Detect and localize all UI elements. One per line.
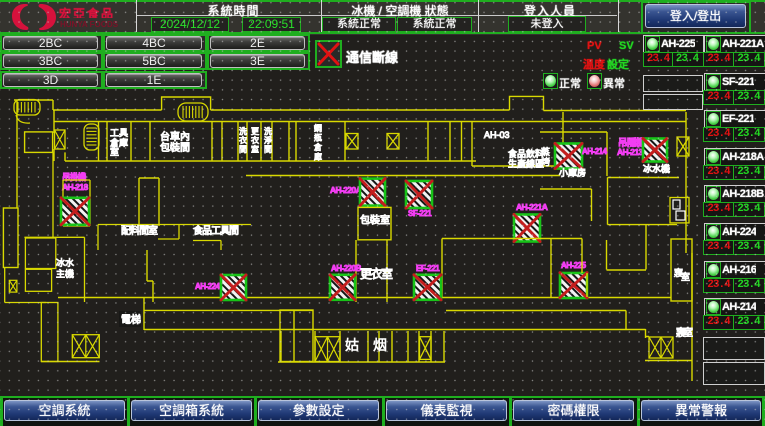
svg-text:冰水: 冰水 bbox=[56, 257, 74, 268]
svg-text:洗: 洗 bbox=[239, 126, 247, 136]
svg-text:姑: 姑 bbox=[345, 337, 359, 353]
svg-text:工具: 工具 bbox=[110, 128, 128, 138]
svg-text:更: 更 bbox=[251, 127, 259, 136]
svg-text:室: 室 bbox=[681, 271, 690, 282]
svg-text:間: 間 bbox=[239, 145, 247, 154]
svg-text:衣: 衣 bbox=[239, 135, 247, 145]
svg-text:倉: 倉 bbox=[314, 142, 322, 152]
svg-text:庫: 庫 bbox=[314, 152, 322, 162]
svg-text:更衣室: 更衣室 bbox=[360, 266, 393, 281]
svg-text:AH-221A: AH-221A bbox=[516, 202, 548, 212]
svg-text:AH-03: AH-03 bbox=[484, 130, 510, 140]
svg-text:電梯: 電梯 bbox=[121, 313, 141, 326]
svg-text:包裝室: 包裝室 bbox=[360, 214, 390, 227]
svg-text:衣: 衣 bbox=[251, 135, 259, 145]
svg-text:淨: 淨 bbox=[264, 135, 272, 145]
svg-text:主機: 主機 bbox=[56, 268, 74, 279]
svg-text:洗: 洗 bbox=[264, 126, 272, 136]
svg-text:食品飲料: 食品飲料 bbox=[508, 148, 544, 159]
svg-text:AH-218: AH-218 bbox=[62, 182, 89, 192]
svg-text:蒸: 蒸 bbox=[541, 146, 550, 157]
svg-text:室: 室 bbox=[110, 146, 119, 157]
svg-text:AH-213: AH-213 bbox=[617, 147, 644, 157]
svg-text:台車內: 台車內 bbox=[160, 130, 190, 143]
svg-text:包裝間: 包裝間 bbox=[160, 141, 190, 154]
svg-text:烤: 烤 bbox=[541, 156, 550, 167]
svg-text:生產線區: 生產線區 bbox=[508, 158, 544, 169]
svg-text:烟: 烟 bbox=[373, 337, 387, 353]
svg-text:瓶: 瓶 bbox=[314, 133, 322, 143]
svg-text:冰水機: 冰水機 bbox=[643, 163, 670, 174]
svg-text:AH-224: AH-224 bbox=[195, 282, 221, 291]
svg-text:AH-220A: AH-220A bbox=[330, 185, 362, 195]
svg-text:SF-221: SF-221 bbox=[408, 209, 432, 218]
svg-text:配料間室: 配料間室 bbox=[121, 224, 158, 237]
svg-text:AH-220B: AH-220B bbox=[331, 264, 362, 273]
svg-text:AH-214: AH-214 bbox=[582, 147, 608, 156]
svg-text:間: 間 bbox=[264, 145, 272, 154]
svg-text:鋼: 鋼 bbox=[314, 123, 322, 133]
svg-text:EF-221: EF-221 bbox=[416, 264, 440, 273]
svg-text:室: 室 bbox=[251, 144, 259, 154]
svg-text:AH-225: AH-225 bbox=[561, 261, 587, 270]
svg-text:小庫房: 小庫房 bbox=[559, 167, 586, 178]
svg-text:寢室: 寢室 bbox=[676, 326, 693, 339]
svg-text:食品工具間: 食品工具間 bbox=[193, 224, 239, 237]
